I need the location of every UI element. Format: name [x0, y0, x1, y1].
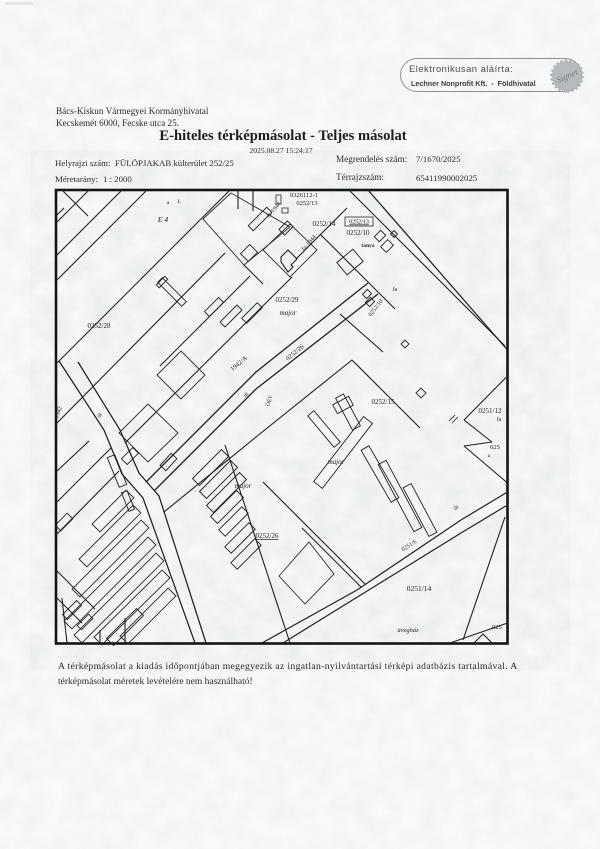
svg-text:a: a [488, 453, 491, 459]
svg-text:út: út [96, 412, 104, 419]
svg-text:fa: fa [393, 286, 398, 293]
svg-text:025: 025 [492, 624, 502, 631]
svg-text:major: major [235, 482, 252, 490]
svg-text:üvegház: üvegház [397, 627, 419, 634]
svg-text:1942/A: 1942/A [229, 355, 249, 373]
svg-text:0252/13: 0252/13 [296, 200, 317, 207]
svg-text:0252/15: 0252/15 [372, 398, 395, 406]
svg-text:major: major [328, 458, 345, 466]
svg-text:fa: fa [497, 416, 502, 423]
svg-text:út: út [453, 504, 460, 512]
svg-text:0252/13: 0252/13 [349, 220, 369, 226]
svg-text:major: major [280, 309, 297, 317]
svg-text:út: út [243, 391, 251, 399]
svg-text:E 4: E 4 [157, 215, 168, 224]
svg-text:ÓÉV: ÓÉV [264, 394, 275, 407]
svg-text:L: L [177, 199, 181, 205]
svg-text:0252/10: 0252/10 [368, 299, 385, 318]
svg-text:0326112-1: 0326112-1 [290, 192, 318, 199]
svg-text:0252/28: 0252/28 [88, 322, 111, 330]
svg-text:025: 025 [490, 444, 500, 451]
svg-text:0251/14: 0251/14 [407, 584, 432, 593]
svg-text:fa-1944: fa-1944 [265, 201, 282, 220]
svg-text:0252/10: 0252/10 [347, 229, 370, 237]
svg-text:0252/29: 0252/29 [276, 296, 299, 304]
svg-text:0252/26: 0252/26 [256, 532, 279, 540]
svg-text:0252/14: 0252/14 [313, 220, 336, 228]
svg-text:a: a [167, 200, 170, 206]
svg-text:tanya: tanya [361, 243, 374, 249]
svg-text:0251/12: 0251/12 [479, 407, 502, 415]
